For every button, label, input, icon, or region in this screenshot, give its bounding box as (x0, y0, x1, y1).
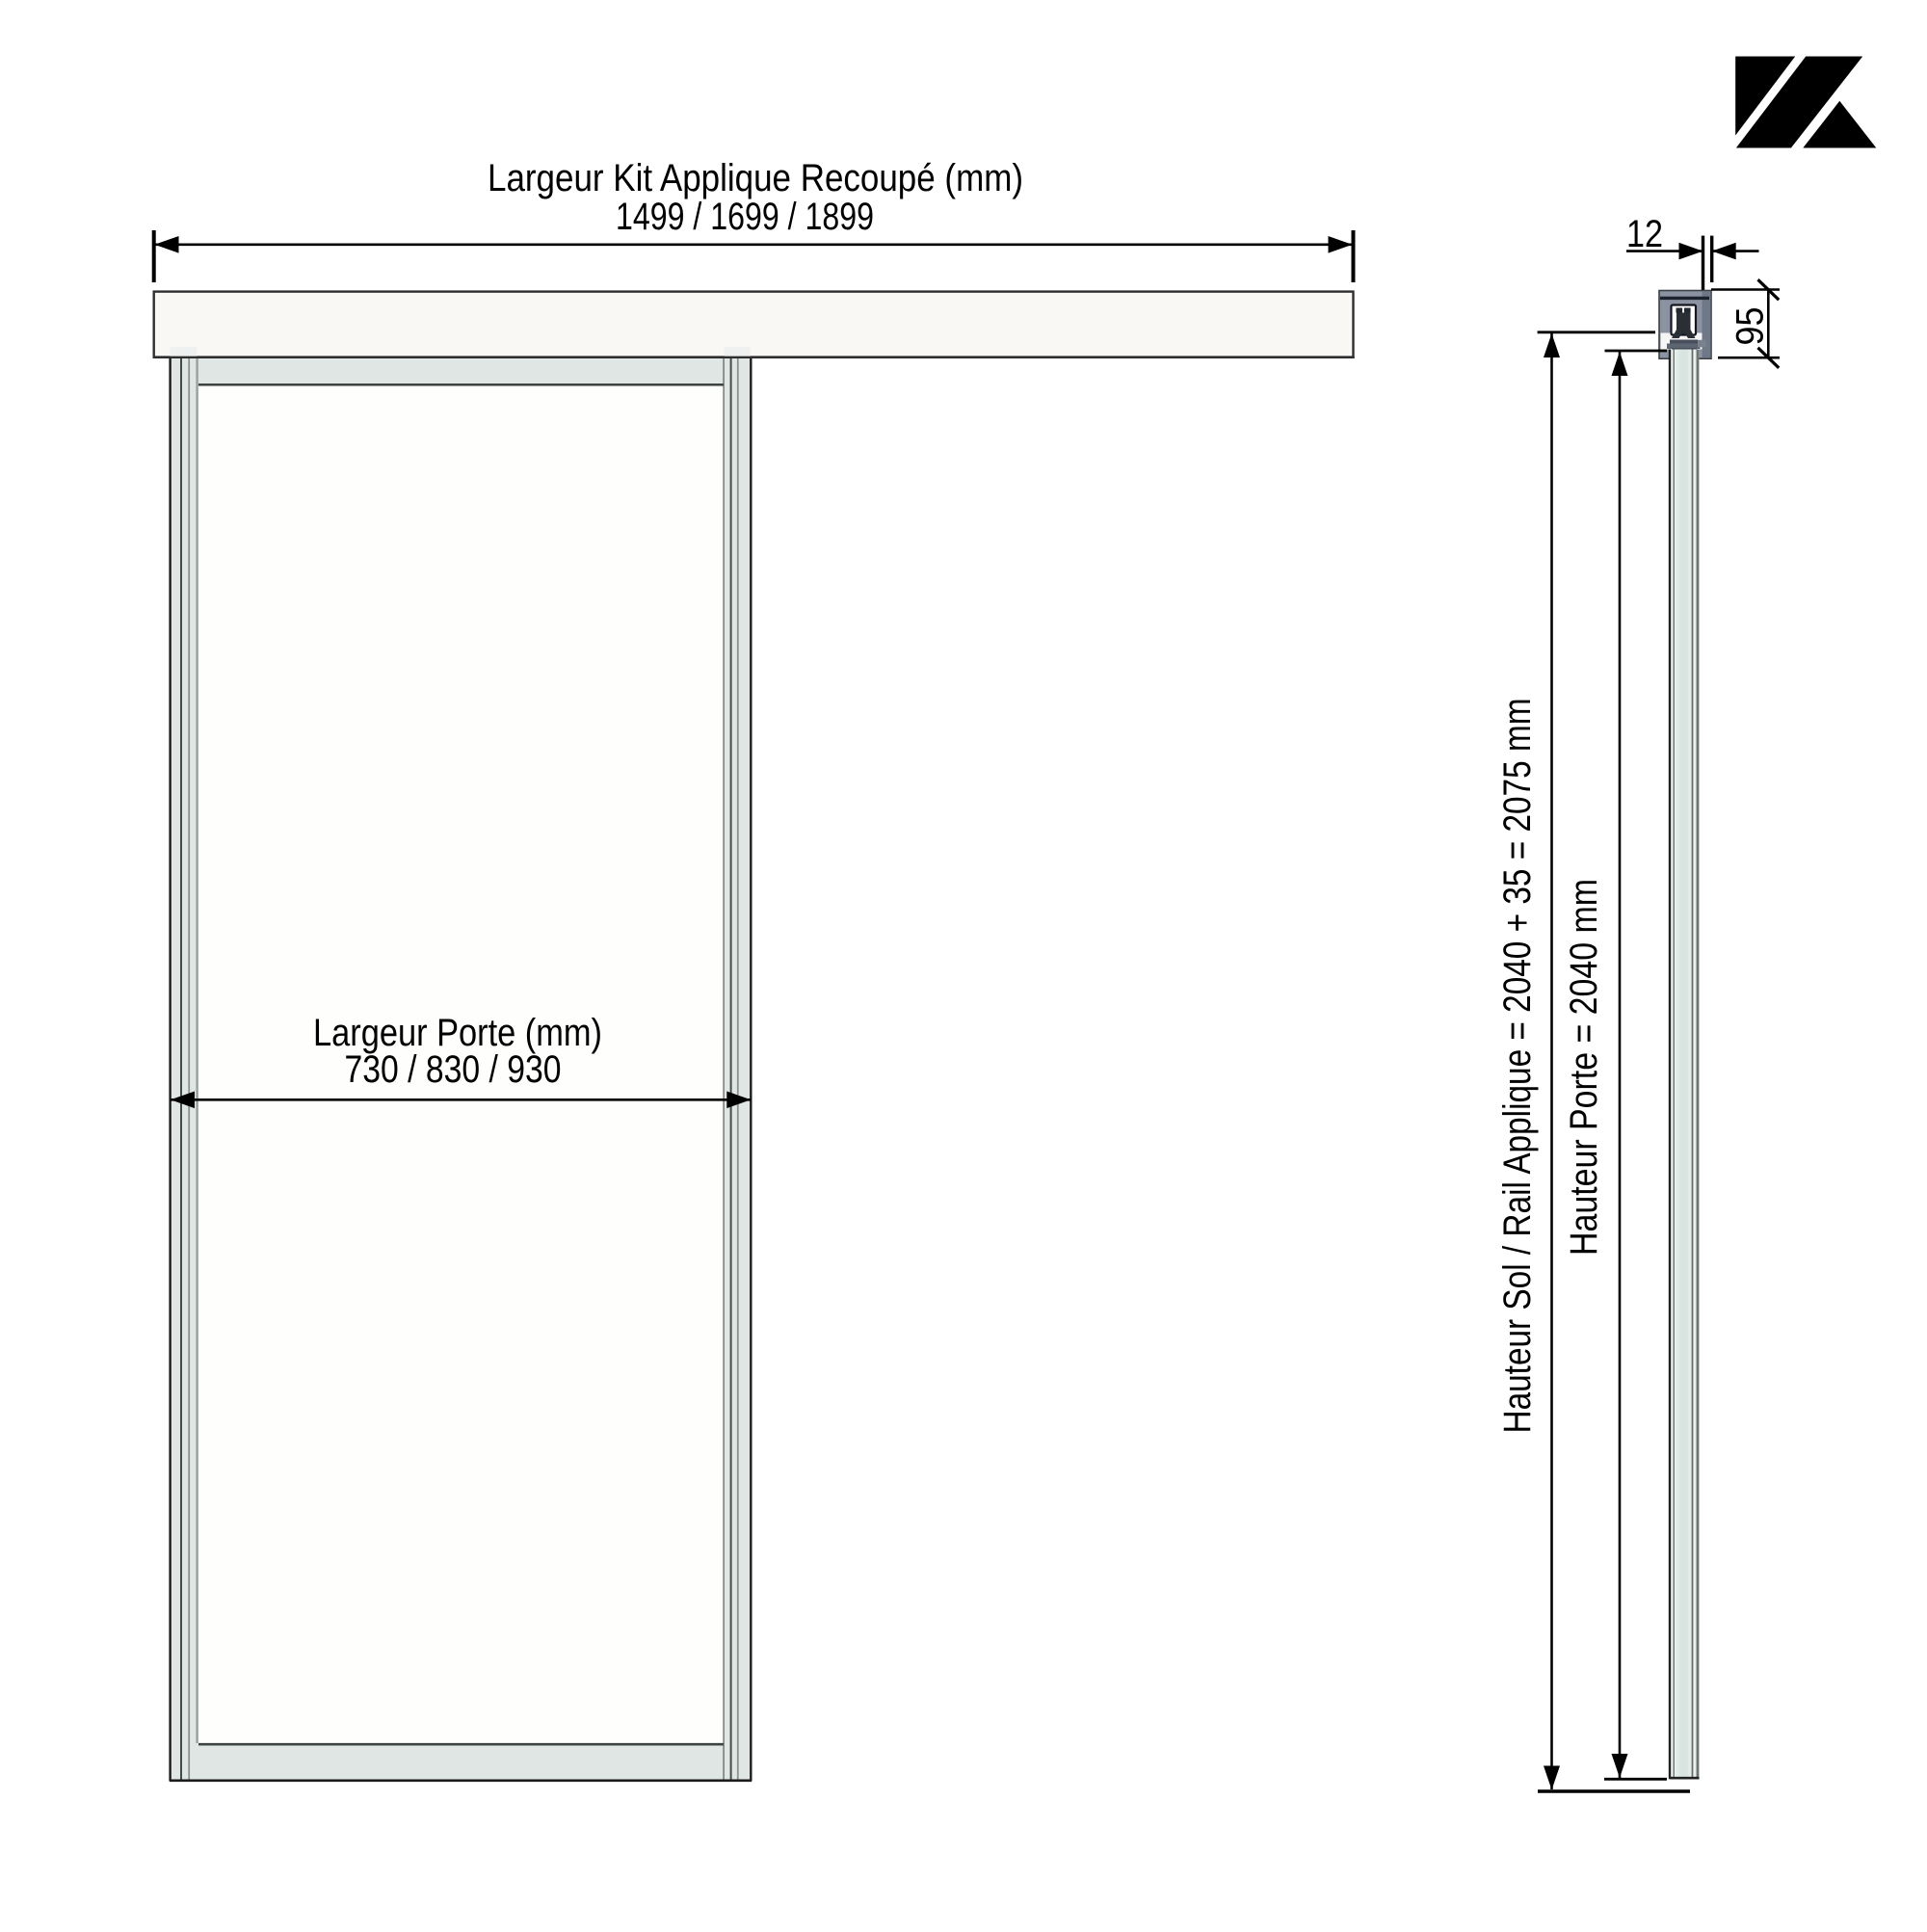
svg-text:95: 95 (1729, 307, 1772, 346)
svg-text:12: 12 (1626, 213, 1663, 255)
svg-text:Hauteur Sol / Rail Applique =: Hauteur Sol / Rail Applique = 2040 + 35 … (1496, 699, 1539, 1434)
svg-text:Largeur Kit Applique Recoupé (: Largeur Kit Applique Recoupé (mm) (488, 157, 1023, 199)
svg-text:Hauteur Porte = 2040 mm: Hauteur Porte = 2040 mm (1563, 879, 1605, 1256)
svg-text:1499 / 1699 / 1899: 1499 / 1699 / 1899 (616, 196, 874, 238)
svg-text:730 / 830 / 930: 730 / 830 / 930 (345, 1048, 562, 1091)
